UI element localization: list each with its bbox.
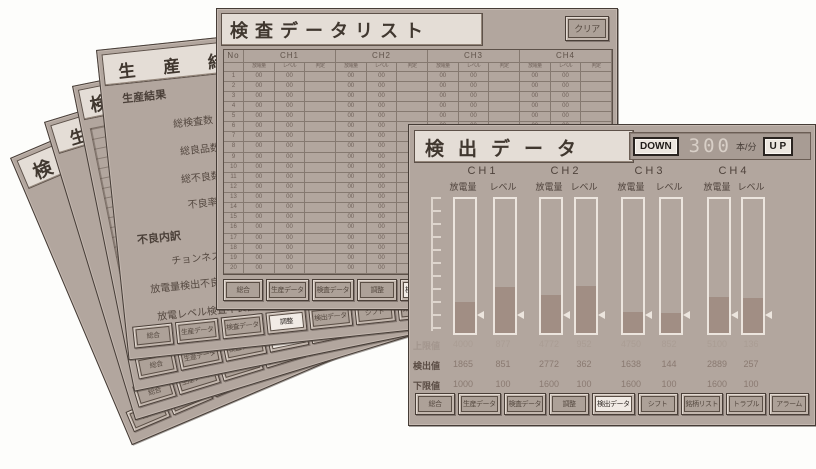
limit-marker-icon (765, 311, 772, 319)
value-cell: 144 (649, 359, 689, 369)
table-cell: 00 (244, 173, 275, 183)
table-cell: 00 (244, 254, 275, 264)
table-cell: 00 (244, 203, 275, 213)
table-cell: 00 (244, 82, 275, 92)
table-cell: 00 (275, 183, 306, 193)
speed-down-button[interactable]: DOWN (633, 137, 679, 156)
table-cell: 00 (275, 163, 306, 173)
table-cell: 00 (244, 112, 275, 122)
column-label: 放電量 (617, 180, 644, 193)
column-label: レベル (655, 180, 682, 193)
table-cell (305, 92, 336, 102)
speed-up-button[interactable]: U P (763, 137, 794, 156)
value-cell: 100 (649, 379, 689, 389)
table-cell: 00 (336, 82, 367, 92)
table-cell: 00 (520, 72, 551, 82)
value-cell: 852 (649, 339, 689, 349)
sub-header: レベル (275, 63, 306, 72)
row-number: 5 (224, 112, 244, 122)
nav-button-row: 総合生産データ検査データ調整検出データシフト銘柄リストトラブルアラーム (415, 393, 809, 415)
table-cell: 00 (367, 102, 398, 112)
table-cell (305, 142, 336, 152)
sub-header: 放電量 (428, 63, 459, 72)
table-cell: 00 (275, 213, 306, 223)
table-cell: 00 (459, 92, 490, 102)
value-cell: 362 (564, 359, 604, 369)
table-cell: 00 (244, 132, 275, 142)
gauge-fill (576, 286, 596, 333)
row-number: 17 (224, 234, 244, 244)
table-cell: 00 (367, 92, 398, 102)
table-cell: 00 (428, 92, 459, 102)
table-cell (305, 173, 336, 183)
sub-header: 放電量 (244, 63, 275, 72)
sub-header: 放電量 (520, 63, 551, 72)
table-cell: 00 (275, 153, 306, 163)
nav-button-調整[interactable]: 調整 (549, 393, 589, 415)
table-cell: 00 (244, 244, 275, 254)
channel-header-CH3: CH3 (428, 50, 520, 63)
table-cell: 00 (520, 112, 551, 122)
table-cell: 00 (275, 132, 306, 142)
table-cell: 00 (367, 132, 398, 142)
limit-marker-icon (598, 311, 605, 319)
table-cell: 00 (244, 264, 275, 274)
table-cell: 00 (551, 72, 582, 82)
table-cell: 00 (336, 254, 367, 264)
table-cell: 00 (275, 72, 306, 82)
table-cell: 00 (275, 223, 306, 233)
row-number: 1 (224, 72, 244, 82)
value-cell: 1600 (529, 379, 569, 389)
table-cell: 00 (244, 122, 275, 132)
value-cell: 851 (483, 359, 523, 369)
gauge-fill (541, 295, 561, 333)
nav-button-label: 銘柄リスト (684, 396, 721, 412)
table-cell (581, 112, 612, 122)
limit-marker-icon (731, 311, 738, 319)
channel-label-CH3: CH3 (634, 165, 665, 177)
table-cell: 00 (336, 122, 367, 132)
table-cell (305, 82, 336, 92)
table-cell (305, 234, 336, 244)
gauge-bar (659, 197, 683, 335)
table-cell: 00 (367, 112, 398, 122)
table-cell: 00 (428, 112, 459, 122)
gauge-bar (741, 197, 765, 335)
table-cell: 00 (275, 234, 306, 244)
table-cell: 00 (244, 223, 275, 233)
value-row-label: 上限値 (413, 339, 440, 352)
limit-marker-icon (683, 311, 690, 319)
nav-button-label: 総合 (135, 326, 170, 345)
table-cell: 00 (367, 203, 398, 213)
table-cell: 00 (367, 153, 398, 163)
gauge-fill (709, 297, 729, 333)
nav-button-label: 検出データ (595, 396, 632, 412)
column-label: レベル (570, 180, 597, 193)
table-cell: 00 (275, 193, 306, 203)
table-cell (305, 163, 336, 173)
table-cell (224, 63, 244, 72)
gauge-fill (455, 302, 475, 333)
nav-button-アラーム[interactable]: アラーム (769, 393, 809, 415)
table-cell (489, 72, 520, 82)
table-cell (305, 153, 336, 163)
nav-button-生産データ[interactable]: 生産データ (266, 279, 309, 301)
row-number: 15 (224, 213, 244, 223)
value-row-label: 検出値 (413, 359, 440, 372)
table-cell: 00 (428, 72, 459, 82)
table-cell (305, 112, 336, 122)
channel-label-CH2: CH2 (550, 165, 581, 177)
table-cell: 00 (244, 102, 275, 112)
channel-label-CH1: CH1 (467, 165, 498, 177)
table-cell: 00 (367, 82, 398, 92)
table-cell: 00 (551, 82, 582, 92)
table-cell (305, 203, 336, 213)
table-cell: 00 (244, 234, 275, 244)
table-cell: 00 (275, 244, 306, 254)
nav-button-label: 総合 (226, 282, 260, 298)
table-cell: 00 (275, 92, 306, 102)
nav-button-label: 調整 (552, 396, 586, 412)
table-cell (305, 244, 336, 254)
value-cell: 952 (564, 339, 604, 349)
nav-button-label: 検査データ (223, 316, 261, 336)
table-cell (305, 213, 336, 223)
column-label: 放電量 (535, 180, 562, 193)
table-cell (489, 112, 520, 122)
table-cell: 00 (275, 203, 306, 213)
gauge-bar (574, 197, 598, 335)
table-cell: 00 (551, 112, 582, 122)
window-detection-data: 検出データ DOWN 300 本/分 U P CH1放電量レベルCH2放電量レベ… (408, 124, 816, 426)
row-number: 6 (224, 122, 244, 132)
table-cell: 00 (336, 72, 367, 82)
nav-button-総合[interactable]: 総合 (415, 393, 455, 415)
table-cell: 00 (275, 122, 306, 132)
table-cell: 00 (275, 254, 306, 264)
row-number: 16 (224, 223, 244, 233)
gauge-bar (453, 197, 477, 335)
table-cell: 00 (520, 92, 551, 102)
sub-header: 判定 (489, 63, 520, 72)
nav-button-シフト[interactable]: シフト (638, 393, 678, 415)
clear-button-label: クリア (568, 19, 606, 38)
row-number: 10 (224, 163, 244, 173)
table-cell (305, 122, 336, 132)
table-cell (581, 102, 612, 112)
column-label: レベル (737, 180, 764, 193)
value-cell: 2772 (529, 359, 569, 369)
row-number: 3 (224, 92, 244, 102)
table-cell: 00 (367, 173, 398, 183)
gauge-bar (707, 197, 731, 335)
column-label: 放電量 (703, 180, 730, 193)
nav-button-label: 検出データ (311, 307, 349, 327)
sub-header: レベル (459, 63, 490, 72)
nav-button-調整[interactable]: 調整 (265, 309, 307, 335)
table-cell: 00 (367, 213, 398, 223)
value-cell: 100 (564, 379, 604, 389)
row-number: 12 (224, 183, 244, 193)
table-cell: 00 (367, 142, 398, 152)
table-cell: 00 (336, 244, 367, 254)
column-label: 放電量 (449, 180, 476, 193)
table-cell: 00 (336, 173, 367, 183)
gauge-bar (539, 197, 563, 335)
value-cell: 136 (731, 339, 771, 349)
table-cell (305, 132, 336, 142)
table-cell (305, 254, 336, 264)
table-cell: 00 (336, 234, 367, 244)
table-cell: 00 (428, 102, 459, 112)
table-cell (305, 193, 336, 203)
table-cell: 00 (244, 183, 275, 193)
gauge-fill (495, 287, 515, 333)
value-cell: 1000 (443, 379, 483, 389)
table-cell: 00 (336, 112, 367, 122)
table-cell: 00 (244, 142, 275, 152)
table-cell: 00 (336, 142, 367, 152)
table-cell: 00 (367, 244, 398, 254)
table-cell: 00 (520, 102, 551, 112)
gauge-fill (743, 298, 763, 333)
nav-button-銘柄リスト[interactable]: 銘柄リスト (681, 393, 724, 415)
table-cell (581, 92, 612, 102)
channel-header-CH1: CH1 (244, 50, 336, 63)
table-cell: 00 (336, 163, 367, 173)
value-cell: 877 (483, 339, 523, 349)
channel-label-CH4: CH4 (718, 165, 749, 177)
nav-button-label: 調整 (360, 282, 394, 298)
table-cell: 00 (336, 132, 367, 142)
gauge-scale (431, 197, 441, 331)
row-number: 14 (224, 203, 244, 213)
nav-button-生産データ[interactable]: 生産データ (175, 318, 220, 344)
table-cell: 00 (367, 183, 398, 193)
limit-marker-icon (563, 311, 570, 319)
table-cell: 00 (459, 112, 490, 122)
sub-header: 判定 (305, 63, 336, 72)
section-heading: 生産結果 (121, 86, 166, 107)
table-cell: 00 (336, 193, 367, 203)
table-cell (305, 72, 336, 82)
sub-header: レベル (367, 63, 398, 72)
clear-button[interactable]: クリア (565, 16, 609, 41)
sub-header: 放電量 (336, 63, 367, 72)
table-cell (305, 183, 336, 193)
table-cell: 00 (336, 183, 367, 193)
window-title: 検査データリスト (221, 13, 483, 46)
row-number: 4 (224, 102, 244, 112)
nav-button-生産データ[interactable]: 生産データ (458, 393, 501, 415)
value-cell: 100 (483, 379, 523, 389)
speed-unit: 本/分 (736, 140, 757, 153)
gauge-fill (661, 313, 681, 333)
sub-header: レベル (551, 63, 582, 72)
table-cell: 00 (336, 213, 367, 223)
nav-button-label: 生産データ (269, 282, 306, 298)
gauge-bar (493, 197, 517, 335)
table-cell: 00 (275, 142, 306, 152)
nav-button-label: トラブル (729, 396, 763, 412)
defect-label: チョンネス (171, 247, 222, 267)
nav-button-label: 生産データ (461, 396, 498, 412)
nav-button-検査データ[interactable]: 検査データ (312, 279, 355, 301)
table-cell: 00 (459, 102, 490, 112)
value-cell: 4000 (443, 339, 483, 349)
sub-header: 判定 (397, 63, 428, 72)
table-cell: 00 (244, 213, 275, 223)
table-cell (397, 82, 428, 92)
table-cell: 00 (275, 102, 306, 112)
nav-button-label: シフト (641, 396, 675, 412)
table-cell (581, 82, 612, 92)
table-cell: 00 (336, 264, 367, 274)
row-number: 18 (224, 244, 244, 254)
value-cell: 100 (731, 379, 771, 389)
table-cell: 00 (336, 102, 367, 112)
table-cell: 00 (336, 153, 367, 163)
nav-button-調整[interactable]: 調整 (357, 279, 397, 301)
table-cell (305, 223, 336, 233)
table-cell: 00 (275, 264, 306, 274)
table-cell: 00 (367, 254, 398, 264)
table-cell: 00 (459, 82, 490, 92)
table-cell (305, 264, 336, 274)
nav-button-label: アラーム (772, 396, 806, 412)
nav-button-label: 調整 (269, 312, 304, 331)
nav-button-label: 検査データ (315, 282, 352, 298)
table-cell (489, 102, 520, 112)
speed-value: 300 (689, 135, 732, 157)
table-cell (581, 72, 612, 82)
nav-button-検出データ[interactable]: 検出データ (592, 393, 635, 415)
table-cell: 00 (367, 234, 398, 244)
limit-marker-icon (645, 311, 652, 319)
result-label: 不良率 (187, 193, 218, 211)
table-cell (397, 102, 428, 112)
limit-marker-icon (517, 311, 524, 319)
row-number: 11 (224, 173, 244, 183)
table-cell: 00 (336, 223, 367, 233)
sub-header: 判定 (581, 63, 612, 72)
table-cell: 00 (336, 203, 367, 213)
row-number: 20 (224, 264, 244, 274)
channel-header-CH4: CH4 (520, 50, 612, 63)
nav-button-検査データ[interactable]: 検査データ (220, 313, 265, 339)
table-cell: 00 (551, 92, 582, 102)
row-number: 8 (224, 142, 244, 152)
table-cell: 00 (244, 92, 275, 102)
window-title: 検出データ (414, 130, 634, 163)
table-cell: 00 (244, 163, 275, 173)
table-cell: 00 (367, 72, 398, 82)
table-cell (397, 112, 428, 122)
table-cell: 00 (244, 193, 275, 203)
screen-collage: 検出データ 総合生産データ検査データ調整検出データシフト銘柄リストトラブルアラー… (0, 0, 816, 469)
table-cell: 00 (244, 153, 275, 163)
nav-button-総合[interactable]: 総合 (223, 279, 263, 301)
value-cell: 4772 (529, 339, 569, 349)
nav-button-総合[interactable]: 総合 (132, 323, 174, 349)
table-cell (397, 92, 428, 102)
table-cell: 00 (275, 112, 306, 122)
gauge-bar (621, 197, 645, 335)
column-label: レベル (489, 180, 516, 193)
value-cell: 4750 (611, 339, 651, 349)
table-cell: 00 (367, 223, 398, 233)
value-cell: 1865 (443, 359, 483, 369)
table-cell: 00 (551, 102, 582, 112)
row-number: 7 (224, 132, 244, 142)
row-number: 13 (224, 193, 244, 203)
nav-button-label: 生産データ (178, 321, 216, 341)
nav-button-label: 検査データ (507, 396, 544, 412)
nav-button-トラブル[interactable]: トラブル (726, 393, 766, 415)
table-cell: 00 (520, 82, 551, 92)
table-corner-header: No (224, 50, 244, 63)
value-cell: 257 (731, 359, 771, 369)
table-cell (397, 72, 428, 82)
channel-header-CH2: CH2 (336, 50, 428, 63)
table-cell: 00 (367, 193, 398, 203)
table-cell: 00 (336, 92, 367, 102)
table-cell: 00 (275, 173, 306, 183)
gauge-fill (623, 312, 643, 333)
table-cell: 00 (428, 82, 459, 92)
table-cell (489, 82, 520, 92)
nav-button-検査データ[interactable]: 検査データ (504, 393, 547, 415)
table-cell: 00 (275, 82, 306, 92)
value-row-label: 下限値 (413, 379, 440, 392)
row-number: 9 (224, 153, 244, 163)
result-label: 総検査数 (172, 111, 213, 130)
limit-marker-icon (477, 311, 484, 319)
value-cell: 1638 (611, 359, 651, 369)
table-cell: 00 (459, 72, 490, 82)
value-cell: 1600 (611, 379, 651, 389)
section-heading: 不良内訳 (136, 227, 181, 248)
table-cell: 00 (244, 72, 275, 82)
table-cell (305, 102, 336, 112)
table-cell (489, 92, 520, 102)
table-cell: 00 (367, 163, 398, 173)
result-label: 総良品数 (179, 139, 220, 158)
table-cell: 00 (367, 122, 398, 132)
table-cell: 00 (367, 264, 398, 274)
nav-button-label: 総合 (418, 396, 452, 412)
row-number: 19 (224, 254, 244, 264)
row-number: 2 (224, 82, 244, 92)
